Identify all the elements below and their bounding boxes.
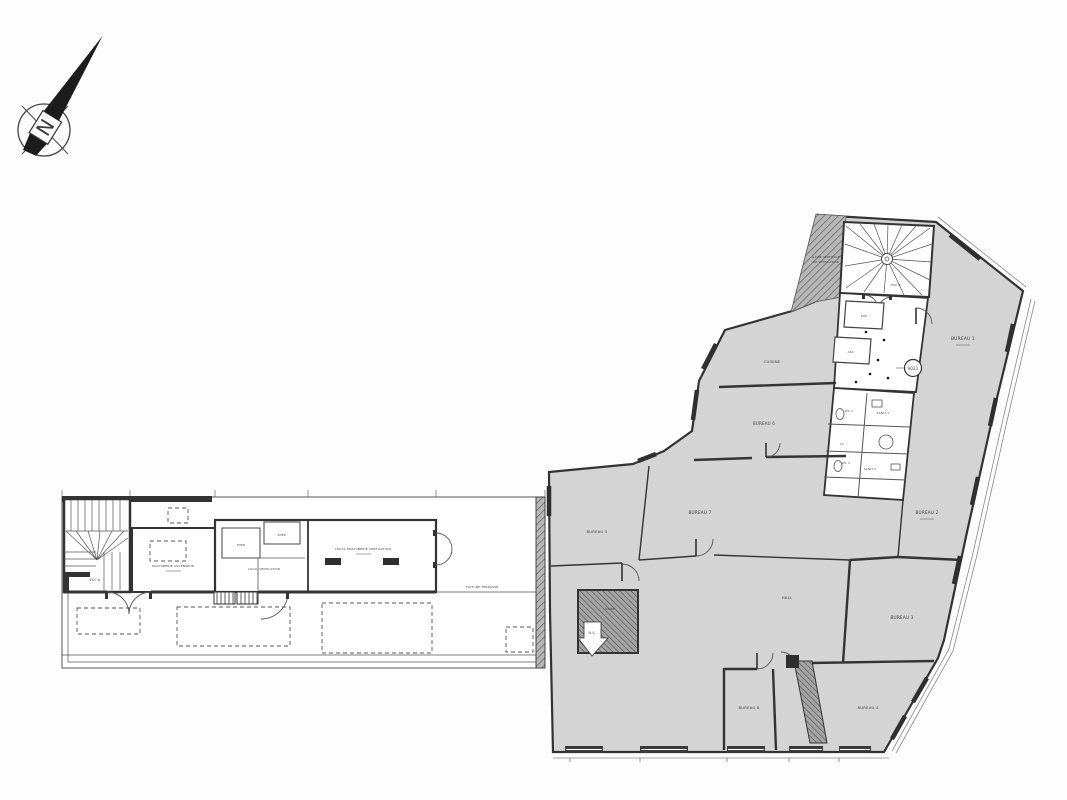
duct-room-gaine: GAINE N.V.: [578, 590, 638, 656]
dimension-ticks: [62, 490, 545, 497]
room-label-asc: ASC: [848, 350, 855, 354]
building-footprint: [549, 215, 1023, 752]
room-machinerie-ascenseur: [132, 528, 215, 592]
equipment-block: [325, 558, 341, 565]
room-label-bureau-3: BUREAU 3: [890, 615, 913, 620]
equipment-block: [383, 558, 399, 565]
room-label-machinerie-ascenseur: MACHINERIE ASCENSEUR: [152, 564, 194, 568]
dimension-ticks-bottom: [570, 758, 839, 762]
shaft-label-line2: DE VENTILATION: [813, 260, 839, 264]
north-compass: N: [18, 29, 113, 160]
room-label-lv: LV: [840, 442, 844, 446]
sanitary-block: [824, 388, 914, 500]
room-label-wc-2: WC 2: [842, 461, 850, 465]
room-label-bureau-4: BUREAU 4: [857, 705, 878, 710]
vent-grille: [214, 592, 235, 604]
room-label-gaine: GAINE: [605, 607, 615, 611]
room-label-local-machinerie-ventilation: LOCAL MACHINERIE VENTILATION: [335, 547, 391, 551]
staircase-b: [840, 222, 934, 297]
badge-number: 9021: [908, 366, 919, 371]
room-label-toiture-terrasse: TOITURE TERRASSE: [465, 585, 499, 589]
room-label-cuisine: CUISINE: [764, 359, 781, 364]
room-label-hall: HALL: [782, 595, 793, 600]
compass-needle-spike: [44, 31, 110, 121]
right-building-plan: GAINE VERTICALE DE VENTILATION ESC B SAS…: [549, 214, 1035, 762]
room-label-esc-a: ESC A: [90, 578, 101, 582]
room-label-shed-2: SHED: [278, 533, 287, 537]
room-label-bureau-2: BUREAU 2: [915, 510, 938, 515]
room-label-bureau-6: BUREAU 6: [753, 421, 775, 426]
floor-plan-page: N ESC A MACHINERIE ASCENSEUR: [0, 0, 1067, 800]
room-label-sanit-2: SANIT 2: [864, 467, 876, 471]
room-local-ventilation: [215, 520, 436, 592]
room-label-bureau-7: BUREAU 7: [688, 510, 711, 515]
room-label-wc-1: WC 1: [845, 409, 853, 413]
hatched-east-wall: [536, 497, 545, 668]
room-label-sas: SAS: [861, 314, 868, 318]
vent-grille: [237, 592, 258, 604]
left-building-plan: ESC A MACHINERIE ASCENSEUR SHED SHED LOC…: [62, 490, 545, 668]
floor-plan-drawing: N ESC A MACHINERIE ASCENSEUR: [0, 0, 1067, 800]
room-label-shed-1: SHED: [237, 543, 246, 547]
room-label-esc-b: ESC B: [891, 283, 900, 287]
room-label-bureau-5: BUREAU 5: [586, 529, 607, 534]
room-label-nv: N.V.: [589, 631, 596, 635]
room-label-bureau-1: BUREAU 1: [951, 336, 975, 342]
room-label-local-ventilation: LOCAL VENTILATION: [248, 567, 280, 571]
room-label-sanit-1: SANIT 1: [877, 411, 889, 415]
shaft-label-line1: GAINE VERTICALE: [812, 255, 840, 259]
room-label-bureau-8: BUREAU 8: [738, 705, 759, 710]
